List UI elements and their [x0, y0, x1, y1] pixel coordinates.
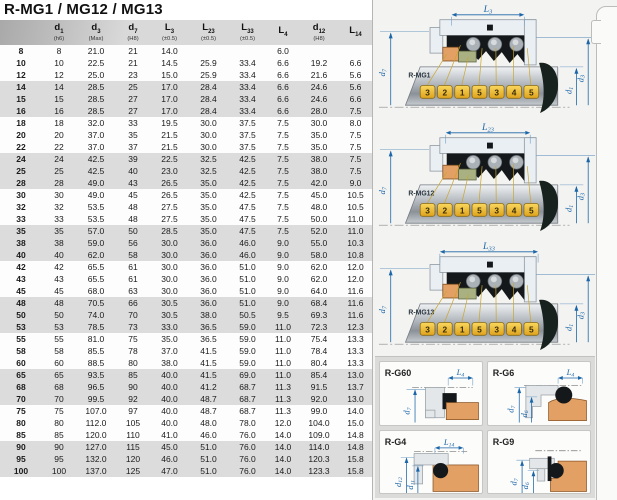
table-cell: 13.3 [339, 357, 372, 369]
table-cell: 32.5 [189, 153, 228, 165]
row-label: 58 [0, 345, 42, 357]
table-cell: 9.0 [339, 177, 372, 189]
seal-model-label: R-MG1 [408, 73, 430, 80]
table-cell: 61 [116, 261, 150, 273]
table-cell: 22 [42, 141, 76, 153]
seal-diagram-r-mg13: R-MG133215345L33d7d1d3 [375, 239, 599, 355]
callout-number: 5 [529, 87, 534, 97]
table-cell: 69.3 [299, 309, 339, 321]
housing-shape [524, 20, 536, 65]
d3-dim-arrow [586, 38, 590, 44]
table-cell: 35.0 [189, 201, 228, 213]
row-label: 16 [0, 105, 42, 117]
row-label: 48 [0, 297, 42, 309]
table-cell: 37.0 [76, 141, 116, 153]
table-cell: 46.0 [189, 429, 228, 441]
table-row: 606088.58038.041.559.011.080.413.3 [0, 357, 372, 369]
table-cell: 69.0 [228, 369, 267, 381]
table-cell: 43 [116, 177, 150, 189]
dimension-d7: d7 [401, 389, 425, 422]
row-label: 28 [0, 177, 42, 189]
table-cell: 99.5 [76, 393, 116, 405]
callout-number: 4 [512, 87, 517, 97]
table-cell: 112.0 [76, 417, 116, 429]
table-cell: 66 [116, 297, 150, 309]
table-row: 8585120.011041.046.076.014.0109.014.8 [0, 429, 372, 441]
table-cell: 78 [116, 345, 150, 357]
table-row: 100100137.012547.051.076.014.0123.315.8 [0, 465, 372, 477]
table-cell: 27.5 [150, 201, 189, 213]
seat-card-r-g6: R-G6 L4 [487, 361, 591, 426]
table-row: 707099.59240.048.768.711.392.013.0 [0, 393, 372, 405]
length-dim-label: L23 [481, 122, 494, 133]
table-cell: 75 [116, 333, 150, 345]
row-label: 40 [0, 249, 42, 261]
spring-highlight [513, 157, 519, 163]
table-cell: 53.5 [76, 213, 116, 225]
svg-text:L4: L4 [566, 367, 575, 378]
table-cell: 11.0 [267, 321, 299, 333]
table-cell: 6.6 [267, 81, 299, 93]
table-cell: 10.5 [339, 201, 372, 213]
table-cell: 78.0 [228, 417, 267, 429]
seal-diagram-r-mg1: R-MG13215345L3d7d1d3 [375, 2, 599, 118]
row-label: 80 [0, 417, 42, 429]
table-cell: 43 [42, 273, 76, 285]
table-cell: 7.5 [267, 177, 299, 189]
table-cell: 30.0 [150, 273, 189, 285]
table-cell: 27.5 [150, 213, 189, 225]
table-cell: 45 [42, 285, 76, 297]
dim-arrow [525, 131, 530, 135]
callout-number: 5 [529, 205, 534, 215]
table-cell: 62.0 [299, 273, 339, 285]
table-cell: 21.6 [299, 69, 339, 81]
table-cell: 24 [42, 153, 76, 165]
table-cell: 70 [42, 393, 76, 405]
table-cell: 9.0 [267, 261, 299, 273]
table-cell: 8.0 [339, 117, 372, 129]
table-cell: 6.6 [267, 93, 299, 105]
column-header-d7: d7(H8) [116, 20, 150, 45]
callout-number: 5 [477, 87, 482, 97]
datasheet-page: R-MG1 / MG12 / MG13 d1(h6)d3(Max)d7(H8)L… [0, 0, 617, 500]
table-cell: 33 [42, 213, 76, 225]
table-cell: 104.0 [299, 417, 339, 429]
table-cell: 45.0 [299, 189, 339, 201]
d1-dim-label: d1 [563, 324, 574, 331]
row-label: 24 [0, 153, 42, 165]
table-cell: 42.5 [228, 189, 267, 201]
seat-card-label: R-G9 [493, 437, 514, 447]
table-cell: 41.5 [189, 369, 228, 381]
table-cell: 37 [116, 141, 150, 153]
table-cell: 37.5 [228, 129, 267, 141]
table-cell [228, 45, 267, 57]
table-cell: 11.0 [267, 369, 299, 381]
table-cell: 70.5 [76, 297, 116, 309]
row-label: 42 [0, 261, 42, 273]
table-cell: 75.4 [299, 333, 339, 345]
table-cell: 120.3 [299, 453, 339, 465]
table-cell: 40.0 [150, 405, 189, 417]
row-label: 33 [0, 213, 42, 225]
dimension-l4: L4 [558, 367, 583, 384]
table-cell: 30.0 [150, 249, 189, 261]
column-header-L33: L33(±0.5) [228, 20, 267, 45]
table-cell: 49.0 [76, 189, 116, 201]
table-row: 353557.05028.535.047.57.552.011.0 [0, 225, 372, 237]
table-cell: 22.5 [150, 153, 189, 165]
table-cell: 85 [116, 369, 150, 381]
spring-highlight [469, 157, 475, 163]
table-row: 505074.07030.538.050.59.569.311.6 [0, 309, 372, 321]
table-cell: 59.0 [228, 345, 267, 357]
table-cell: 16 [42, 105, 76, 117]
table-cell: 13.0 [339, 393, 372, 405]
callout-number: 5 [477, 324, 482, 334]
table-cell: 100 [42, 465, 76, 477]
o-ring-shape [555, 386, 572, 403]
table-cell: 36.0 [189, 285, 228, 297]
seat-ring-shape [443, 284, 459, 298]
table-cell: 14.8 [339, 429, 372, 441]
table-cell: 105 [116, 417, 150, 429]
table-cell: 51.0 [228, 273, 267, 285]
table-cell: 76.0 [228, 429, 267, 441]
table-cell: 7.5 [267, 213, 299, 225]
seat-card-label: R-G60 [385, 368, 411, 378]
table-cell: 36.5 [189, 333, 228, 345]
table-cell: 21.5 [150, 129, 189, 141]
svg-text:d12: d12 [393, 476, 404, 486]
table-cell: 80 [116, 357, 150, 369]
page-title: R-MG1 / MG12 / MG13 [4, 1, 163, 18]
row-label: 65 [0, 369, 42, 381]
table-cell: 42.0 [299, 177, 339, 189]
table-cell: 27 [116, 105, 150, 117]
table-cell: 15.8 [339, 453, 372, 465]
table-row: 282849.04326.535.042.57.542.09.0 [0, 177, 372, 189]
table-cell: 110 [116, 429, 150, 441]
gland-housing-shape [414, 453, 448, 464]
table-cell: 35.0 [299, 141, 339, 153]
table-cell: 64.0 [299, 285, 339, 297]
table-cell: 7.5 [339, 153, 372, 165]
table-cell: 78.4 [299, 345, 339, 357]
table-cell: 60 [42, 357, 76, 369]
table-cell: 90 [42, 441, 76, 453]
table-cell: 33.4 [228, 69, 267, 81]
table-cell: 9.0 [267, 273, 299, 285]
table-cell: 32.5 [189, 165, 228, 177]
row-label: 53 [0, 321, 42, 333]
length-dim-label: L3 [483, 4, 493, 15]
table-cell: 52.0 [299, 225, 339, 237]
table-cell [339, 45, 372, 57]
table-cell: 42.5 [76, 165, 116, 177]
d7-dim-label: d7 [377, 305, 388, 313]
table-cell: 11.3 [267, 405, 299, 417]
table-cell: 42 [42, 261, 76, 273]
seat-card-r-g60: R-G60 L4 [379, 361, 483, 426]
table-cell: 22.5 [76, 57, 116, 69]
table-cell: 32.0 [76, 117, 116, 129]
table-cell: 27 [116, 93, 150, 105]
table-cell: 35 [42, 225, 76, 237]
table-row: 424265.56130.036.051.09.062.012.0 [0, 261, 372, 273]
row-label: 15 [0, 93, 42, 105]
column-header-d1: d1(h6) [42, 20, 76, 45]
header-corner-cell [0, 20, 42, 45]
row-label: 50 [0, 309, 42, 321]
table-cell: 28.5 [76, 81, 116, 93]
table-cell: 40 [116, 165, 150, 177]
seal-dimension-table: d1(h6)d3(Max)d7(H8)L3(±0.5)L23(±0.5)L33(… [0, 20, 372, 477]
table-cell: 6.6 [339, 57, 372, 69]
table-row: 9090127.011545.051.076.014.0114.014.8 [0, 441, 372, 453]
table-row: 8821.02114.06.0 [0, 45, 372, 57]
table-cell: 36.0 [189, 237, 228, 249]
table-cell: 114.0 [299, 441, 339, 453]
d3-dim-arrow [586, 156, 590, 162]
table-cell: 10.8 [339, 249, 372, 261]
table-cell: 28.0 [299, 105, 339, 117]
table-cell: 120 [116, 453, 150, 465]
table-cell: 9.5 [267, 309, 299, 321]
table-cell: 76.0 [228, 453, 267, 465]
table-cell: 85 [42, 429, 76, 441]
dimension-d6: d6 [520, 470, 539, 493]
table-cell: 13.0 [339, 369, 372, 381]
svg-text:L14: L14 [443, 437, 455, 448]
table-row: 202037.03521.530.037.57.535.07.5 [0, 129, 372, 141]
table-cell: 23 [116, 69, 150, 81]
spring-highlight [491, 276, 497, 282]
table-cell: 6.6 [267, 57, 299, 69]
table-cell: 30.0 [150, 261, 189, 273]
table-cell: 7.5 [267, 153, 299, 165]
column-header-d12: d12(H8) [299, 20, 339, 45]
table-cell: 95 [42, 453, 76, 465]
table-cell: 6.6 [267, 105, 299, 117]
table-cell: 7.5 [267, 129, 299, 141]
table-cell: 48 [42, 297, 76, 309]
table-cell: 65.5 [76, 261, 116, 273]
table-cell: 30.5 [150, 297, 189, 309]
d1-dim-label: d1 [563, 205, 574, 212]
row-label: 14 [0, 81, 42, 93]
table-cell: 85.5 [76, 345, 116, 357]
size-table-header-row: d1(h6)d3(Max)d7(H8)L3(±0.5)L23(±0.5)L33(… [0, 20, 372, 45]
table-cell: 7.5 [267, 225, 299, 237]
table-cell: 13.7 [339, 381, 372, 393]
table-cell: 21.0 [76, 45, 116, 57]
table-cell: 33.4 [228, 93, 267, 105]
row-label: 75 [0, 405, 42, 417]
svg-text:d6: d6 [519, 410, 530, 417]
table-cell: 9.0 [267, 237, 299, 249]
table-cell: 28.5 [76, 93, 116, 105]
table-cell: 25 [42, 165, 76, 177]
table-cell: 40.0 [150, 381, 189, 393]
table-cell: 51.0 [189, 441, 228, 453]
table-cell: 9.0 [267, 297, 299, 309]
row-label: 20 [0, 129, 42, 141]
table-cell: 58 [116, 249, 150, 261]
table-cell: 59.0 [228, 357, 267, 369]
table-cell: 48 [116, 213, 150, 225]
table-cell: 65.5 [76, 273, 116, 285]
table-cell: 40.0 [150, 369, 189, 381]
d1-dim-arrow [574, 186, 578, 192]
d7-dim-arrow [389, 32, 393, 38]
callout-number: 3 [494, 205, 499, 215]
table-cell: 137.0 [76, 465, 116, 477]
table-cell: 36.0 [189, 297, 228, 309]
o-ring-shape [433, 463, 448, 478]
row-label: 10 [0, 57, 42, 69]
column-header-L3: L3(±0.5) [150, 20, 189, 45]
table-cell: 50.5 [228, 309, 267, 321]
table-cell: 123.3 [299, 465, 339, 477]
table-cell: 7.5 [267, 189, 299, 201]
table-cell: 68.7 [228, 405, 267, 417]
row-label: 100 [0, 465, 42, 477]
table-cell: 30.0 [189, 117, 228, 129]
table-cell: 37.0 [76, 129, 116, 141]
table-cell: 7.5 [339, 141, 372, 153]
table-cell: 15.8 [339, 465, 372, 477]
table-cell: 48.7 [189, 393, 228, 405]
table-row: 585885.57837.041.559.011.078.413.3 [0, 345, 372, 357]
table-cell: 74.0 [76, 309, 116, 321]
table-row: 7575107.09740.048.768.711.399.014.0 [0, 405, 372, 417]
table-cell: 37.5 [228, 141, 267, 153]
table-row: 454568.06330.036.051.09.064.011.6 [0, 285, 372, 297]
table-cell: 12.3 [339, 321, 372, 333]
table-cell: 38 [42, 237, 76, 249]
table-row: 434365.56130.036.051.09.062.012.0 [0, 273, 372, 285]
table-cell: 96.5 [76, 381, 116, 393]
size-table-body: 8821.02114.06.0101022.52114.525.933.46.6… [0, 45, 372, 477]
table-cell: 7.5 [339, 129, 372, 141]
row-label: 68 [0, 381, 42, 393]
table-cell: 11.0 [267, 333, 299, 345]
table-cell [299, 45, 339, 57]
table-cell: 88.5 [76, 357, 116, 369]
callout-number: 1 [460, 205, 465, 215]
table-cell: 50.0 [299, 213, 339, 225]
table-cell: 30.0 [150, 285, 189, 297]
drive-pin-shape [487, 262, 493, 268]
table-cell: 72.3 [299, 321, 339, 333]
row-label: 45 [0, 285, 42, 297]
table-cell: 11.0 [339, 213, 372, 225]
table-cell: 80 [42, 417, 76, 429]
row-label: 8 [0, 45, 42, 57]
table-row: 303049.04526.535.042.57.545.010.5 [0, 189, 372, 201]
row-label: 25 [0, 165, 42, 177]
d7-dim-arrow [389, 269, 393, 275]
table-cell: 47.5 [228, 201, 267, 213]
callout-number: 5 [477, 205, 482, 215]
svg-text:L4: L4 [456, 367, 465, 378]
table-cell: 5.6 [339, 69, 372, 81]
table-cell: 57.0 [76, 225, 116, 237]
table-cell: 12.0 [339, 261, 372, 273]
table-cell: 35.0 [189, 225, 228, 237]
table-row: 9595132.012046.051.076.014.0120.315.8 [0, 453, 372, 465]
row-label: 70 [0, 393, 42, 405]
table-cell: 68 [42, 381, 76, 393]
table-cell: 92.0 [299, 393, 339, 405]
seal-diagram-r-mg12: R-MG123215345L23d7d1d3 [375, 120, 599, 236]
column-header-L4: L4 [267, 20, 299, 45]
table-cell: 25 [116, 81, 150, 93]
table-row: 161628.52717.028.433.46.628.07.5 [0, 105, 372, 117]
d7-dim-label: d7 [377, 68, 388, 76]
table-cell: 80.4 [299, 357, 339, 369]
table-cell: 81.0 [76, 333, 116, 345]
callout-number: 3 [494, 324, 499, 334]
table-cell: 12.0 [339, 273, 372, 285]
table-cell: 45 [116, 189, 150, 201]
callout-number: 2 [443, 324, 448, 334]
dim-arrow [440, 250, 445, 254]
table-cell: 33.0 [150, 321, 189, 333]
table-cell: 36.0 [189, 261, 228, 273]
page-curl-edge [596, 6, 617, 500]
callout-number: 1 [460, 324, 465, 334]
row-label: 22 [0, 141, 42, 153]
table-cell: 15.0 [150, 69, 189, 81]
table-cell: 42.5 [228, 153, 267, 165]
row-label: 38 [0, 237, 42, 249]
callout-number: 5 [529, 324, 534, 334]
table-cell: 47.5 [228, 225, 267, 237]
callout-number: 3 [425, 87, 430, 97]
column-header-d3: d3(Max) [76, 20, 116, 45]
table-row: 151528.52717.028.433.46.624.66.6 [0, 93, 372, 105]
d3-dim-label: d3 [575, 193, 586, 200]
table-cell: 15 [42, 93, 76, 105]
drive-pin-shape [487, 25, 493, 31]
column-header-L23: L23(±0.5) [189, 20, 228, 45]
row-label: 18 [0, 117, 42, 129]
table-cell: 14.5 [150, 57, 189, 69]
table-cell: 13.3 [339, 333, 372, 345]
table-cell: 59.0 [228, 333, 267, 345]
svg-text:d7: d7 [506, 404, 517, 412]
table-cell: 25.0 [76, 69, 116, 81]
table-cell: 40.0 [150, 417, 189, 429]
table-row: 404062.05830.036.046.09.058.010.8 [0, 249, 372, 261]
column-header-L14: L14 [339, 20, 372, 45]
table-cell: 40 [42, 249, 76, 261]
table-cell: 14.0 [267, 465, 299, 477]
d3-dim-label: d3 [575, 312, 586, 319]
table-cell: 6.0 [267, 45, 299, 57]
table-cell: 14.0 [267, 441, 299, 453]
table-cell: 92 [116, 393, 150, 405]
table-cell: 26.5 [150, 177, 189, 189]
table-cell: 12 [42, 69, 76, 81]
table-cell: 62.0 [76, 249, 116, 261]
callout-number: 2 [443, 87, 448, 97]
table-cell: 107.0 [76, 405, 116, 417]
table-cell: 48 [116, 201, 150, 213]
